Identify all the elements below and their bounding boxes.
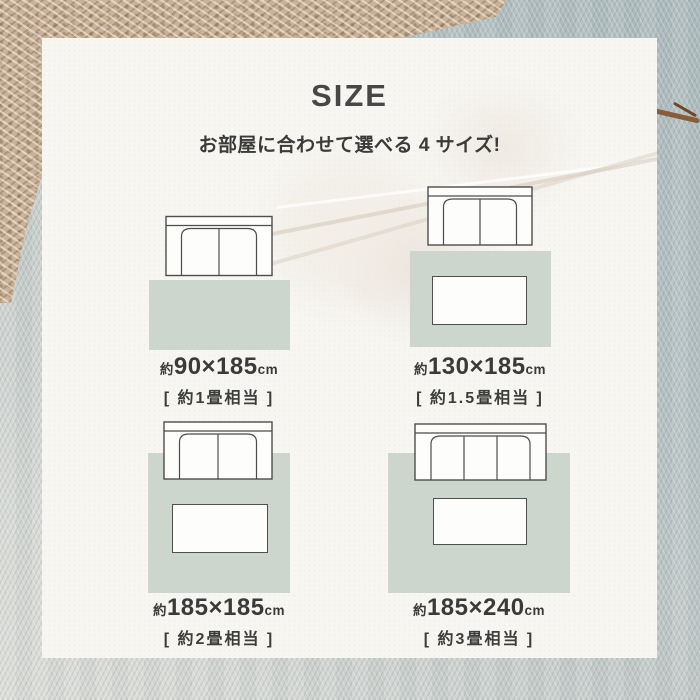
- size-dimensions: 約185×240cm: [364, 595, 594, 620]
- table-diagram: [172, 504, 268, 553]
- sofa-2seat-icon: [163, 421, 273, 480]
- size-info-card: SIZE お部屋に合わせて選べる 4 サイズ! 約90×185cm [ 約1畳相…: [42, 38, 657, 658]
- sofa-2seat-icon: [165, 215, 273, 277]
- size-unit: cm: [525, 603, 546, 618]
- size-value: 130×185: [428, 353, 526, 380]
- sofa-2seat-icon: [427, 186, 533, 246]
- size-dimensions: 約90×185cm: [104, 354, 334, 379]
- tatami-equivalent: [ 約3畳相当 ]: [364, 625, 594, 649]
- page-subtitle: お部屋に合わせて選べる 4 サイズ!: [42, 130, 657, 157]
- sofa-3seat-icon: [414, 423, 547, 481]
- rug-diagram-90x185: [149, 280, 290, 350]
- page-title: SIZE: [42, 78, 657, 114]
- size-prefix: 約: [413, 603, 427, 618]
- size-label-185x240: 約185×240cm [ 約3畳相当 ]: [364, 595, 594, 649]
- size-prefix: 約: [153, 603, 167, 618]
- table-diagram: [433, 498, 527, 545]
- tatami-equivalent: [ 約1畳相当 ]: [104, 384, 334, 408]
- tatami-equivalent: [ 約1.5畳相当 ]: [365, 384, 595, 408]
- rug-size-infographic: SIZE お部屋に合わせて選べる 4 サイズ! 約90×185cm [ 約1畳相…: [0, 0, 700, 700]
- size-value: 185×240: [427, 594, 525, 621]
- size-unit: cm: [265, 603, 286, 618]
- size-label-185x185: 約185×185cm [ 約2畳相当 ]: [104, 595, 334, 649]
- size-unit: cm: [258, 362, 279, 377]
- size-prefix: 約: [160, 362, 174, 377]
- size-dimensions: 約185×185cm: [104, 595, 334, 620]
- tatami-equivalent: [ 約2畳相当 ]: [104, 625, 334, 649]
- size-prefix: 約: [414, 362, 428, 377]
- size-label-130x185: 約130×185cm [ 約1.5畳相当 ]: [365, 354, 595, 408]
- size-unit: cm: [526, 362, 547, 377]
- size-value: 185×185: [167, 594, 265, 621]
- size-label-90x185: 約90×185cm [ 約1畳相当 ]: [104, 354, 334, 408]
- size-dimensions: 約130×185cm: [365, 354, 595, 379]
- card-content: SIZE お部屋に合わせて選べる 4 サイズ! 約90×185cm [ 約1畳相…: [42, 38, 657, 658]
- size-value: 90×185: [174, 353, 258, 380]
- table-diagram: [432, 276, 527, 325]
